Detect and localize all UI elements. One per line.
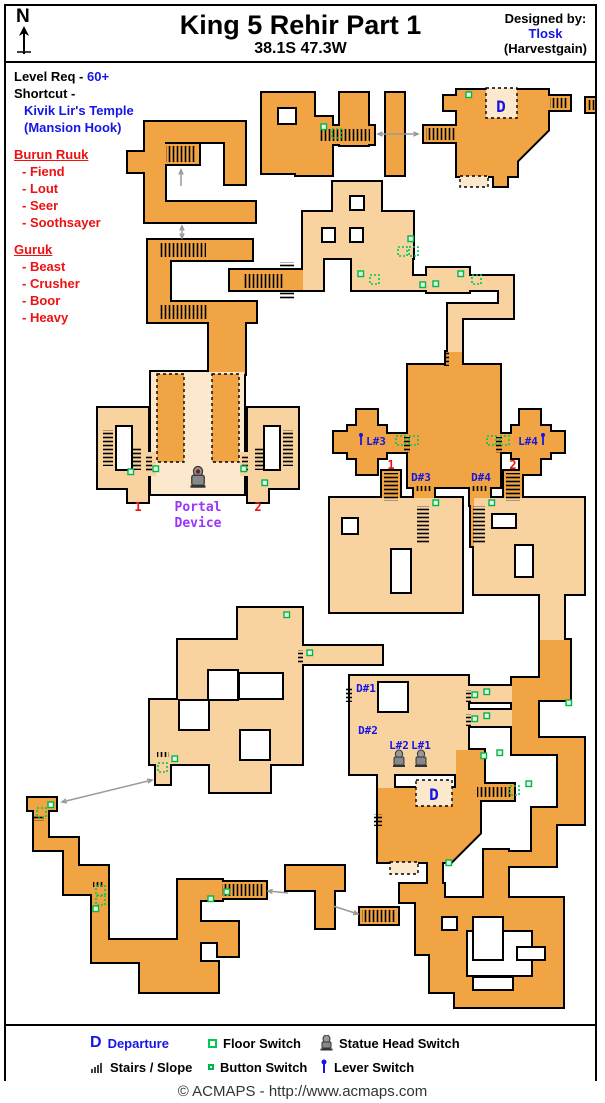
monster-name: - Fiend <box>14 163 164 180</box>
level-req: Level Req - 60+ <box>14 68 164 85</box>
map-room <box>352 243 382 290</box>
button-switch-icon <box>489 500 495 506</box>
stairs-icon <box>131 448 141 470</box>
button-switch-icon <box>566 700 572 706</box>
acmaps-dungeon-map-page: N King 5 Rehir Part 1 38.1S 47.3W Design… <box>0 0 605 1103</box>
legend-lever-switch: Lever Switch <box>320 1059 460 1075</box>
monster-name: - Beast <box>14 258 164 275</box>
stairs-icon <box>473 506 485 544</box>
map-label-l4: L#4 <box>518 435 538 448</box>
map-label-d2: D#2 <box>358 724 378 737</box>
slope-arrow-icon <box>333 906 358 915</box>
stairs-icon <box>243 274 283 288</box>
map-room <box>444 96 458 110</box>
map-room <box>534 544 584 582</box>
door-ticks-icon <box>444 352 449 366</box>
map-room <box>209 322 245 374</box>
door-ticks-icon <box>146 456 152 472</box>
map-label-l1: L#1 <box>411 739 431 752</box>
stairs-icon <box>255 448 265 470</box>
map-room <box>238 608 302 672</box>
map-room <box>210 764 270 792</box>
door-ticks-icon <box>472 486 488 491</box>
slope-arrow-icon <box>179 170 183 186</box>
statue-head-switch-icon <box>320 1035 333 1051</box>
button-switch-icon <box>484 689 490 695</box>
map-label-d_top: D <box>496 97 506 116</box>
map-room <box>140 940 182 992</box>
faction-name: Burun Ruuk <box>14 146 164 163</box>
door-ticks-icon <box>466 690 471 702</box>
legend-button-switch: Button Switch <box>208 1059 320 1075</box>
map-label-l3: L#3 <box>366 435 386 448</box>
button-switch-icon <box>321 124 327 130</box>
map-label-num1a: 1 <box>134 500 141 514</box>
stairs-icon <box>280 262 294 270</box>
map-room <box>284 670 302 702</box>
map-room <box>382 256 412 278</box>
map-room <box>302 646 382 664</box>
map-label-portal1: Portal <box>175 500 222 515</box>
monster-name: - Heavy <box>14 309 164 326</box>
map-room <box>512 738 584 754</box>
map-room <box>533 965 563 1007</box>
map-room <box>92 894 108 942</box>
slope-arrow-icon <box>180 226 184 238</box>
map-room <box>474 544 514 582</box>
map-room <box>334 432 350 452</box>
faction-name: Guruk <box>14 241 164 258</box>
map-room <box>474 578 584 594</box>
map-label-d_bottom: D <box>429 785 439 804</box>
button-switch-icon <box>497 750 503 756</box>
button-switch-icon <box>472 716 478 722</box>
designer-credit: Designed by: Tlosk (Harvestgain) <box>504 11 587 56</box>
stairs-icon <box>160 305 208 319</box>
stairs-icon <box>320 129 370 141</box>
stairs-icon <box>103 430 113 466</box>
door-ticks-icon <box>298 650 303 664</box>
shortcut-method: (Mansion Hook) <box>14 119 164 136</box>
button-switch-icon <box>408 236 414 242</box>
map-room <box>218 942 238 956</box>
button-switch-icon <box>472 692 478 698</box>
button-switch-icon <box>284 612 290 618</box>
button-switch-icon <box>358 271 364 277</box>
floor-switch-icon <box>208 1039 217 1048</box>
map-room <box>494 176 507 186</box>
monster-name: - Lout <box>14 180 164 197</box>
map-info-panel: Level Req - 60+ Shortcut - Kivik Lir's T… <box>14 68 164 326</box>
button-switch-icon <box>224 889 230 895</box>
button-switch-icon <box>241 466 247 472</box>
stairs-icon <box>477 787 511 797</box>
map-room <box>225 122 245 184</box>
map-room <box>200 922 238 942</box>
map-label-d1: D#1 <box>356 682 376 695</box>
stairs-icon <box>160 243 206 257</box>
stairs-icon <box>506 473 520 501</box>
button-switch-icon <box>433 281 439 287</box>
designed-by-label: Designed by: <box>505 11 587 26</box>
map-room <box>357 456 377 474</box>
button-switch-icon <box>48 802 54 808</box>
lever-switch-icon <box>320 1059 328 1075</box>
button-switch-icon <box>466 92 472 98</box>
map-room <box>500 852 556 866</box>
button-switch-icon <box>172 756 178 762</box>
map-room <box>316 890 334 928</box>
map-room <box>357 410 377 428</box>
button-switch-icon <box>307 650 313 656</box>
stairs-icon <box>280 292 294 300</box>
map-room <box>150 700 302 764</box>
departure-icon: D <box>90 1034 102 1052</box>
map-room <box>484 850 508 900</box>
stairs-icon <box>417 506 429 544</box>
button-switch-icon <box>153 466 159 472</box>
button-switch-icon <box>93 906 99 912</box>
stairs-icon <box>588 100 595 110</box>
monster-name: - Seer <box>14 197 164 214</box>
map-label-num1b: 1 <box>387 458 394 472</box>
button-switch-icon <box>128 469 134 475</box>
door-ticks-icon <box>157 752 169 757</box>
map-room <box>548 432 564 452</box>
stairs-icon <box>374 814 382 826</box>
shortcut-destination: Kivik Lir's Temple <box>14 102 164 119</box>
button-switch-icon <box>526 781 532 787</box>
legend-statue-head-switch: Statue Head Switch <box>320 1034 460 1052</box>
button-switch-icon <box>481 753 487 759</box>
stairs-icon <box>362 910 396 922</box>
stairs-icon <box>90 1062 104 1073</box>
map-room <box>520 410 540 428</box>
designer-alt-name: (Harvestgain) <box>504 41 587 56</box>
stairs-icon <box>426 128 456 140</box>
button-switch-icon <box>433 500 439 506</box>
button-switch-icon <box>484 713 490 719</box>
button-switch-icon <box>262 480 268 486</box>
door-ticks-icon <box>346 688 352 702</box>
slope-arrow-icon <box>62 779 152 803</box>
legend-stairs: Stairs / Slope <box>90 1059 208 1075</box>
monster-name: - Boor <box>14 292 164 309</box>
copyright-footer: © ACMAPS - http://www.acmaps.com <box>0 1083 605 1100</box>
map-label-d4: D#4 <box>471 471 491 484</box>
monster-name: - Soothsayer <box>14 214 164 231</box>
map-legend: D Departure Floor Switch Statue Head Swi… <box>6 1024 595 1083</box>
stairs-icon <box>550 98 568 108</box>
map-frame: N King 5 Rehir Part 1 38.1S 47.3W Design… <box>4 4 597 1081</box>
door-ticks-icon <box>416 486 432 491</box>
stairs-icon <box>384 473 398 501</box>
designer-name: Tlosk <box>528 26 562 41</box>
map-room <box>64 866 108 894</box>
button-switch-icon <box>208 896 214 902</box>
button-switch-icon <box>208 1064 214 1070</box>
stairs-icon <box>283 430 293 466</box>
map-room <box>520 456 540 474</box>
map-room <box>408 365 500 487</box>
map-room <box>378 774 394 790</box>
stairs-icon <box>166 146 196 162</box>
door-ticks-icon <box>466 714 471 726</box>
map-room <box>512 678 570 700</box>
shortcut-label: Shortcut - <box>14 85 164 102</box>
map-label-num2b: 2 <box>509 458 516 472</box>
map-room <box>286 866 344 890</box>
map-label-d3: D#3 <box>411 471 431 484</box>
legend-departure: D Departure <box>90 1034 208 1052</box>
map-room <box>178 880 222 900</box>
map-room <box>330 594 462 612</box>
map-label-l2: L#2 <box>389 739 409 752</box>
map-room <box>448 304 462 354</box>
map-label-num2a: 2 <box>254 500 261 514</box>
map-room <box>303 256 323 290</box>
button-switch-icon <box>458 271 464 277</box>
map-label-portal2: Device <box>175 516 222 531</box>
legend-floor-switch: Floor Switch <box>208 1034 320 1052</box>
map-room <box>540 594 564 644</box>
button-switch-icon <box>446 860 452 866</box>
map-header: N King 5 Rehir Part 1 38.1S 47.3W Design… <box>6 6 595 63</box>
button-switch-icon <box>420 282 426 288</box>
monster-name: - Crusher <box>14 275 164 292</box>
